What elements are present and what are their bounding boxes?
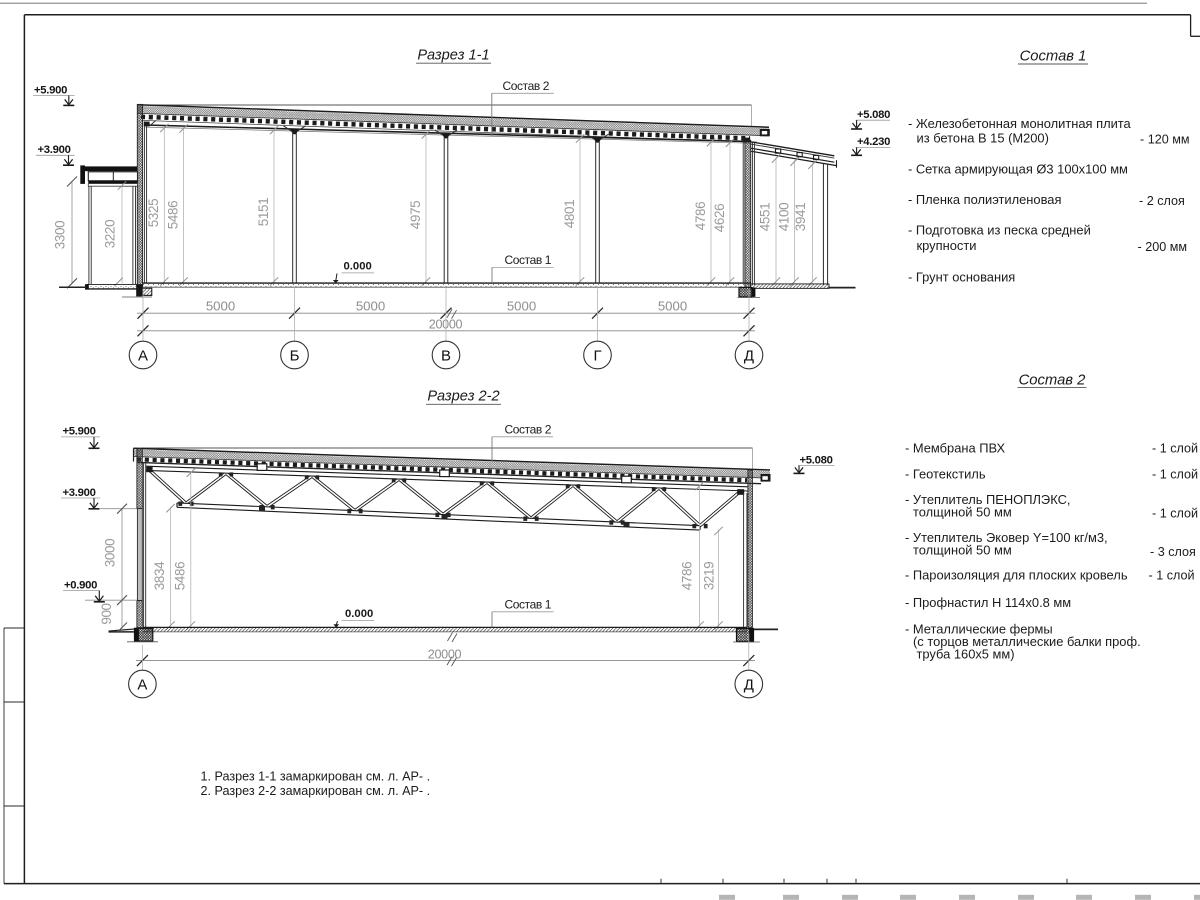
svg-text:2. Разрез 2-2 замаркирован см.: 2. Разрез 2-2 замаркирован см. л. АР- . (201, 784, 431, 798)
svg-text:- 2 слоя: - 2 слоя (1139, 194, 1185, 208)
svg-text:Состав 1: Состав 1 (505, 253, 552, 267)
svg-text:4801: 4801 (562, 200, 577, 228)
svg-text:- Пленка полиэтиленовая: - Пленка полиэтиленовая (908, 192, 1061, 207)
svg-text:+0.900: +0.900 (64, 579, 97, 591)
svg-text:Д: Д (744, 676, 754, 693)
svg-text:- 1 слой: - 1 слой (1152, 442, 1198, 456)
svg-text:В: В (441, 347, 451, 364)
svg-text:4786: 4786 (693, 202, 708, 230)
svg-text:4100: 4100 (776, 203, 791, 231)
svg-text:5000: 5000 (206, 299, 235, 314)
svg-text:- 1 слой: - 1 слой (1152, 468, 1198, 482)
svg-text:- 200 мм: - 200 мм (1138, 240, 1188, 254)
svg-text:Состав 2: Состав 2 (505, 422, 552, 436)
svg-text:+5.080: +5.080 (800, 454, 833, 466)
svg-text:5000: 5000 (356, 299, 385, 314)
svg-text:- Грунт основания: - Грунт основания (908, 270, 1015, 285)
svg-text:- Подготовка из песка средней: - Подготовка из песка средней (908, 223, 1091, 238)
svg-text:+5.900: +5.900 (63, 426, 96, 438)
svg-text:5325: 5325 (146, 199, 161, 227)
svg-text:- 1 слой: - 1 слой (1149, 569, 1195, 583)
svg-text:3219: 3219 (701, 562, 716, 590)
svg-text:1. Разрез 1-1 замаркирован см.: 1. Разрез 1-1 замаркирован см. л. АР- . (201, 770, 431, 784)
svg-text:4786: 4786 (679, 562, 694, 590)
svg-text:3834: 3834 (152, 561, 167, 590)
svg-text:Д: Д (744, 347, 754, 364)
svg-text:- 3 слоя: - 3 слоя (1150, 545, 1196, 559)
svg-text:+4.230: +4.230 (857, 136, 890, 148)
svg-text:900: 900 (99, 603, 114, 624)
svg-text:Состав 1: Состав 1 (505, 597, 552, 611)
svg-text:3941: 3941 (793, 203, 808, 231)
svg-text:4551: 4551 (758, 203, 773, 231)
svg-text:4626: 4626 (712, 204, 727, 232)
svg-text:4975: 4975 (408, 201, 423, 229)
svg-text:крупности: крупности (917, 238, 977, 253)
svg-text:20000: 20000 (428, 647, 462, 661)
svg-text:из бетона В 15 (М200): из бетона В 15 (М200) (917, 130, 1049, 145)
svg-text:+5.080: +5.080 (857, 109, 890, 121)
svg-text:Разрез 2-2: Разрез 2-2 (427, 389, 499, 405)
svg-text:5000: 5000 (507, 299, 536, 314)
svg-text:3300: 3300 (53, 221, 68, 249)
svg-text:Разрез 1-1: Разрез 1-1 (417, 48, 489, 64)
svg-text:0.000: 0.000 (345, 608, 373, 620)
svg-text:- Сетка армирующая Ø3 100х100: - Сетка армирующая Ø3 100х100 мм (908, 162, 1128, 177)
svg-text:- 120 мм: - 120 мм (1140, 133, 1190, 147)
svg-text:Б: Б (290, 347, 300, 364)
svg-text:толщиной 50 мм: толщиной 50 мм (913, 543, 1012, 558)
svg-text:Состав 2: Состав 2 (503, 79, 550, 93)
svg-text:5151: 5151 (256, 198, 271, 226)
svg-text:толщиной 50 мм: толщиной 50 мм (913, 505, 1012, 520)
svg-text:5000: 5000 (658, 299, 687, 314)
svg-text:Г: Г (593, 347, 601, 364)
svg-text:А: А (138, 347, 148, 364)
svg-text:- 1 слой: - 1 слой (1152, 507, 1198, 521)
svg-text:5486: 5486 (165, 201, 180, 229)
svg-text:+3.900: +3.900 (63, 487, 96, 499)
svg-text:+3.900: +3.900 (38, 144, 71, 156)
svg-text:- Геотекстиль: - Геотекстиль (905, 467, 986, 482)
svg-text:- Пароизоляция для плоских кро: - Пароизоляция для плоских кровель (905, 568, 1128, 583)
svg-text:- Мембрана ПВХ: - Мембрана ПВХ (905, 441, 1006, 456)
svg-text:труба 160х5 мм): труба 160х5 мм) (917, 647, 1015, 662)
svg-text:А: А (137, 676, 147, 693)
svg-text:3220: 3220 (102, 220, 117, 248)
svg-text:- Профнастил Н 114х0.8 мм: - Профнастил Н 114х0.8 мм (905, 595, 1071, 610)
svg-text:5486: 5486 (172, 562, 187, 590)
svg-text:+5.900: +5.900 (34, 84, 67, 96)
svg-text:3000: 3000 (103, 539, 118, 567)
svg-text:Состав 1: Состав 1 (1020, 49, 1087, 65)
svg-text:Состав 2: Состав 2 (1019, 372, 1087, 388)
svg-text:- Железобетонная монолитная п: - Железобетонная монолитная плита (908, 116, 1132, 131)
svg-text:0.000: 0.000 (344, 261, 372, 273)
